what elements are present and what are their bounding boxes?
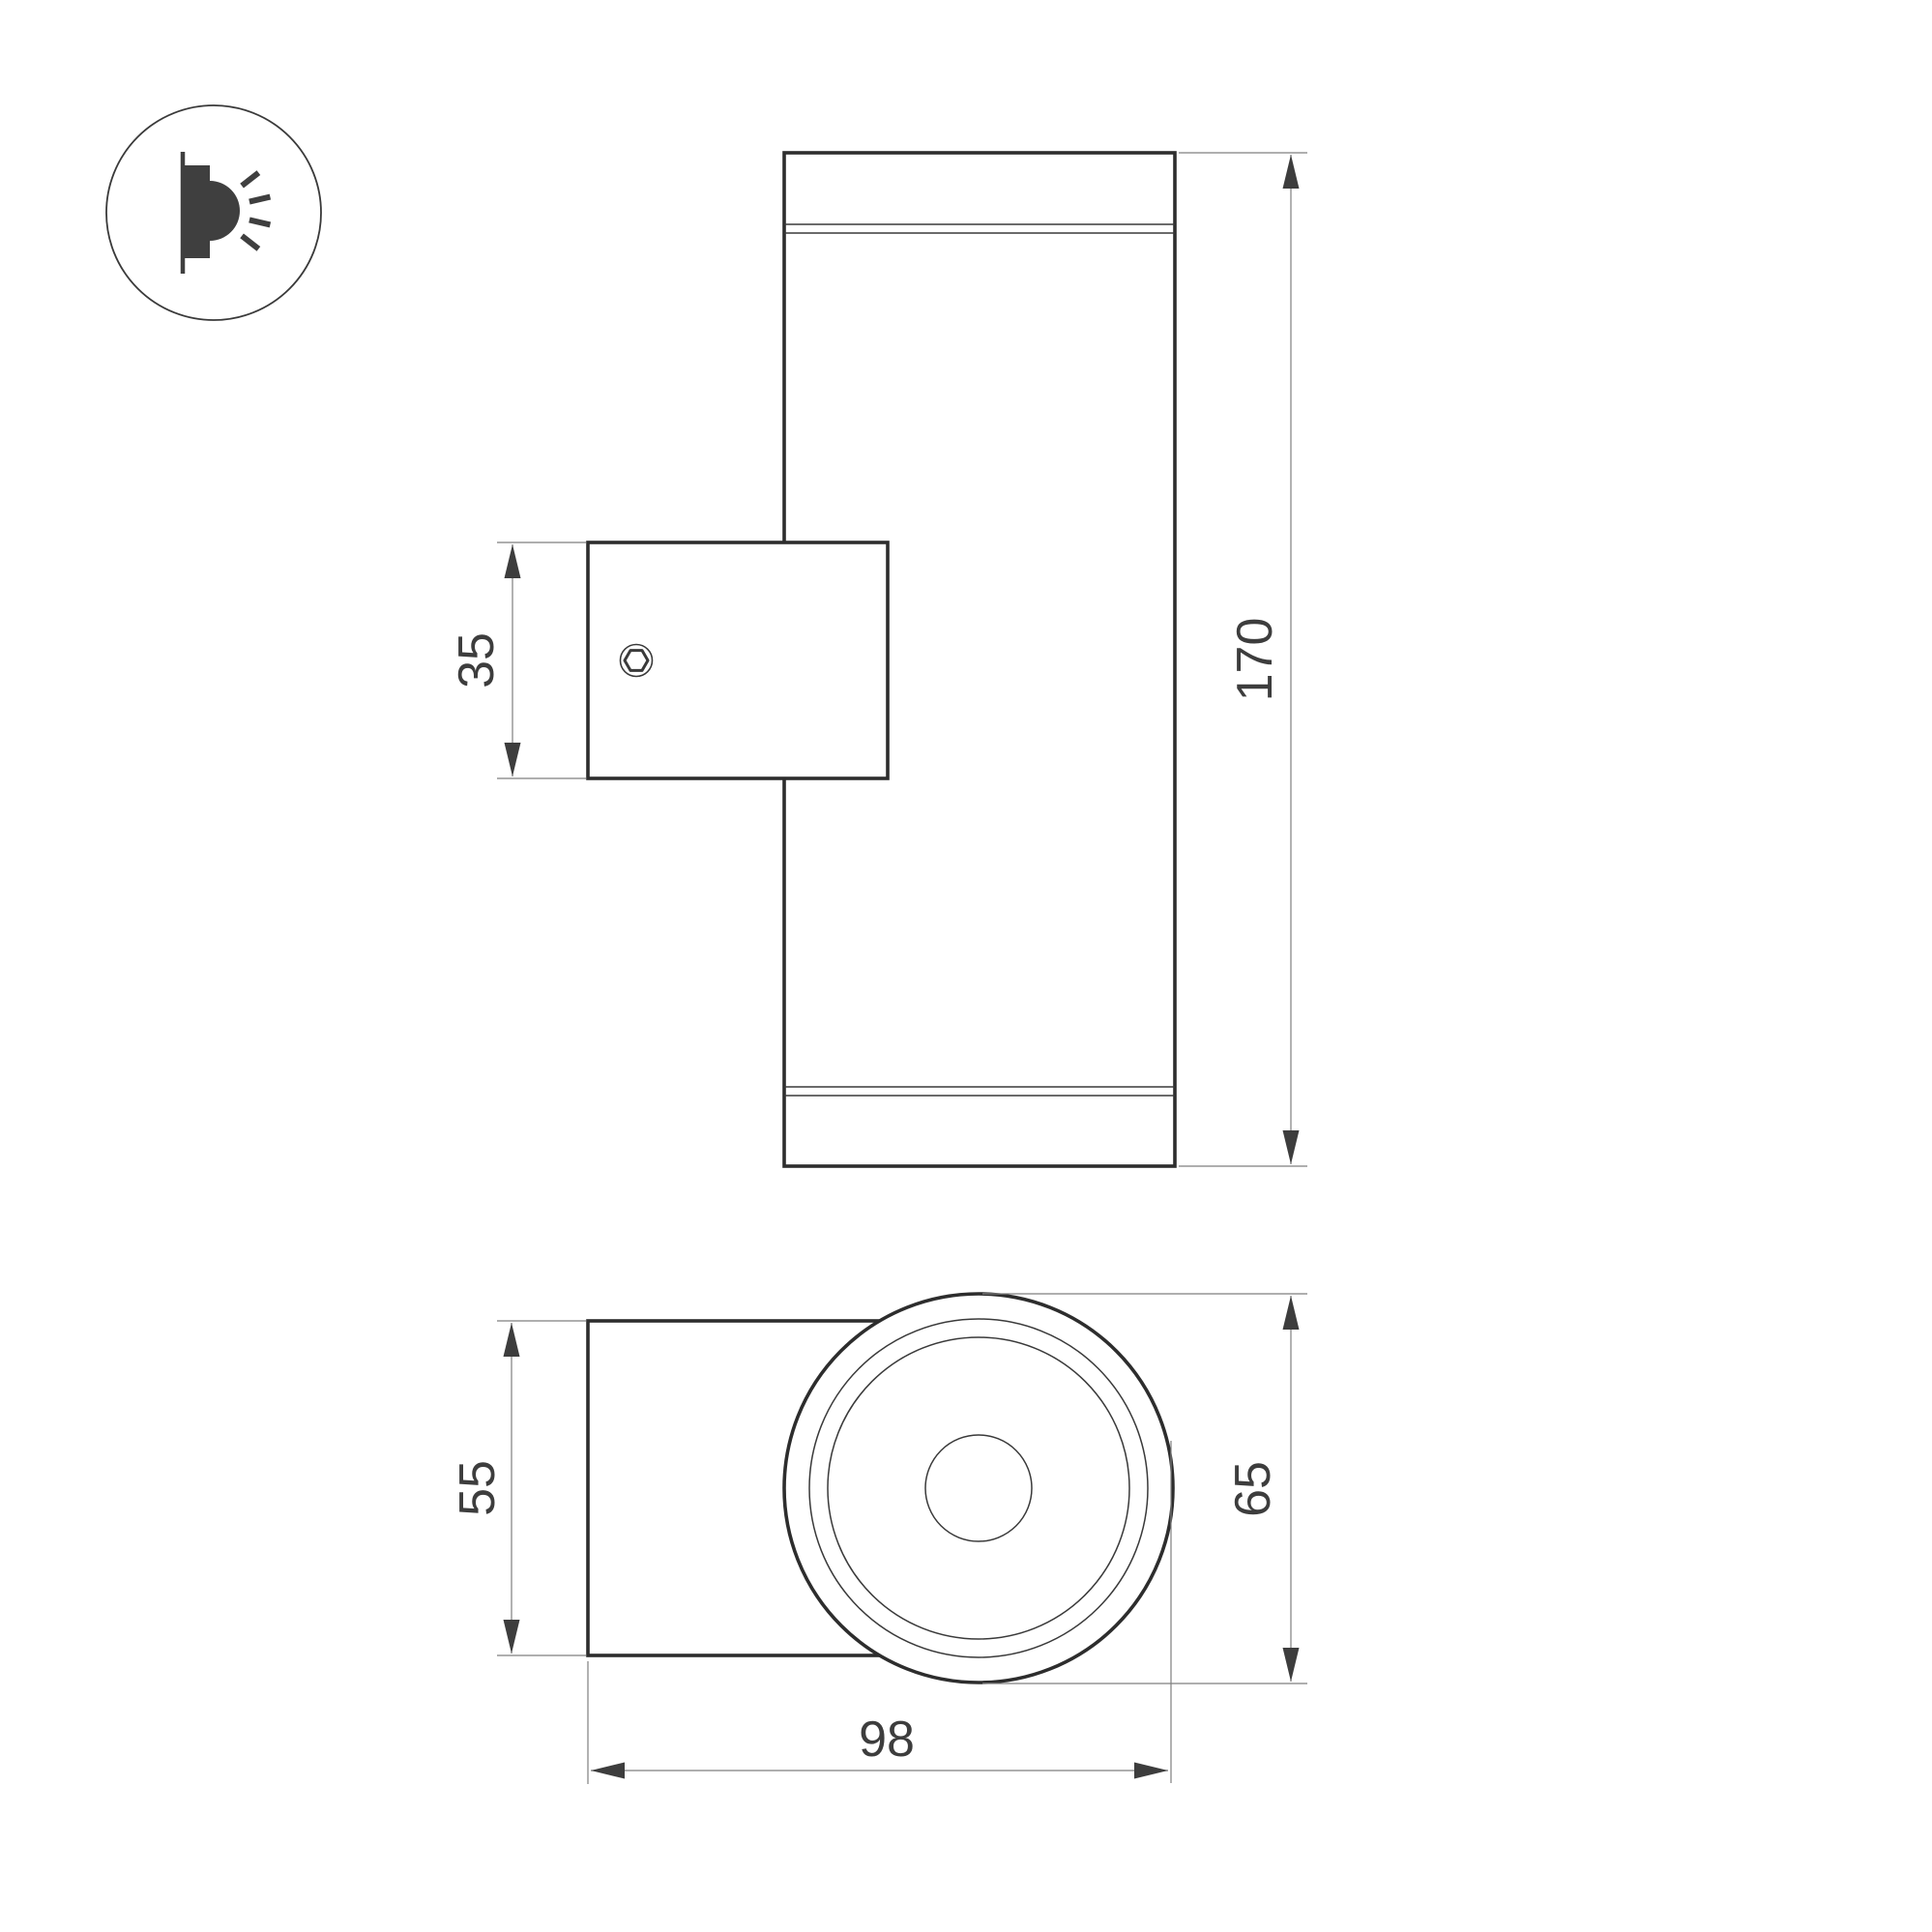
body-outer-circle xyxy=(784,1294,1173,1683)
dimension-bracket-height: 35 xyxy=(449,542,586,778)
front-view xyxy=(588,153,1175,1166)
drawing-canvas: 35 170 55 xyxy=(0,0,1932,1932)
icon-lamp-body xyxy=(184,165,210,258)
bottom-view xyxy=(588,1294,1173,1683)
mount-bracket-outline xyxy=(588,542,888,778)
dim-label-55: 55 xyxy=(450,1460,506,1516)
dim-label-170: 170 xyxy=(1227,618,1283,702)
icon-light-rays xyxy=(242,173,270,249)
wall-light-icon xyxy=(106,105,321,320)
extension-lines-55 xyxy=(497,1321,586,1655)
dim-label-35: 35 xyxy=(449,632,505,688)
dim-label-65: 65 xyxy=(1225,1461,1281,1517)
icon-light-dome xyxy=(210,181,240,241)
dimension-body-height: 170 xyxy=(1179,153,1307,1166)
dim-label-98: 98 xyxy=(859,1712,915,1768)
technical-drawing: 35 170 55 xyxy=(0,0,1932,1932)
dimension-mount-width: 55 xyxy=(450,1321,586,1655)
